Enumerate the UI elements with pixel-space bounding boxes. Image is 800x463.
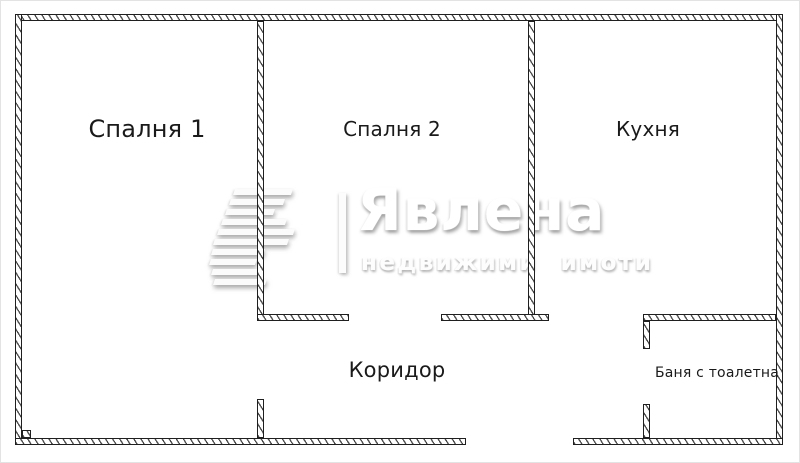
logo-brand-text: Явлена [357, 181, 605, 239]
wall-outer-top [15, 14, 783, 21]
logo-tagline-text: недвижими имоти [361, 251, 653, 276]
room-label-corridor: Коридор [349, 358, 446, 382]
room-label-bathroom: Баня с тоалетна [655, 365, 779, 381]
wall-entry-corner-step [22, 430, 31, 438]
room-label-kitchen: Кухня [616, 117, 680, 141]
wall-outer-left [15, 14, 22, 445]
room-label-bedroom-1: Спалня 1 [88, 115, 205, 143]
wall-bathroom-north-wall [643, 314, 776, 321]
wall-bedroom2-kitchen-divider [528, 21, 535, 321]
room-label-bedroom-2: Спалня 2 [343, 117, 441, 141]
wall-outer-bottom-west [15, 438, 466, 445]
wall-bathroom-west-stub-lower [643, 404, 650, 438]
yavlena-stripes-icon [209, 189, 297, 285]
wall-bedroom1-corridor-stub [257, 399, 264, 438]
wall-bedroom2-south-arm-east [441, 314, 549, 321]
wall-bedroom1-bedroom2-divider [257, 21, 264, 321]
wall-bathroom-west-stub-upper [643, 321, 650, 349]
wall-bedroom2-south-arm-west [257, 314, 349, 321]
floorplan-canvas: Явлена недвижими имоти Спалня 1Спалня 2К… [0, 0, 800, 463]
wall-outer-bottom-east [573, 438, 783, 445]
logo-divider-bar [339, 193, 346, 273]
